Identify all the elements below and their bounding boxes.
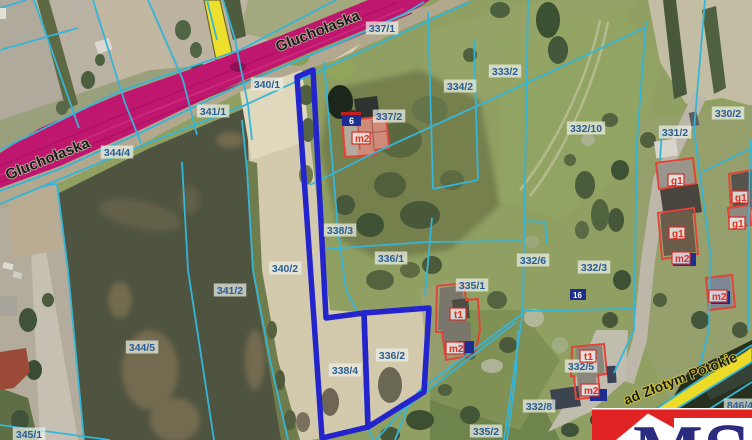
svg-text:341/2: 341/2 [217,285,243,297]
svg-text:m2: m2 [355,134,370,145]
svg-text:344/4: 344/4 [104,147,130,159]
svg-text:t1: t1 [584,352,593,363]
svg-text:g1: g1 [732,219,744,230]
svg-text:334/2: 334/2 [447,81,473,93]
svg-text:333/2: 333/2 [492,66,518,78]
svg-text:m2: m2 [712,292,727,303]
svg-text:g1: g1 [735,193,747,204]
svg-text:336/1: 336/1 [378,253,404,265]
svg-text:g1: g1 [672,229,684,240]
svg-text:341/1: 341/1 [200,106,226,118]
svg-text:16: 16 [573,291,582,300]
svg-text:331/2: 331/2 [662,127,688,139]
svg-text:m2: m2 [584,386,599,397]
svg-text:337/2: 337/2 [376,111,402,123]
svg-text:338/3: 338/3 [327,225,353,237]
svg-text:M: M [633,411,703,440]
svg-text:332/8: 332/8 [526,401,552,413]
svg-text:345/1: 345/1 [16,429,42,440]
svg-text:m2: m2 [449,344,464,355]
svg-text:344/5: 344/5 [129,342,155,354]
svg-text:337/1: 337/1 [369,23,395,35]
svg-text:S: S [703,405,751,440]
svg-text:330/2: 330/2 [715,108,741,120]
svg-text:332/10: 332/10 [570,123,602,135]
svg-text:336/2: 336/2 [379,350,405,362]
svg-text:g1: g1 [671,176,683,187]
svg-text:340/1: 340/1 [254,79,280,91]
svg-text:335/2: 335/2 [473,426,499,438]
svg-text:340/2: 340/2 [272,263,298,275]
svg-text:332/3: 332/3 [581,262,607,274]
svg-text:332/6: 332/6 [520,255,546,267]
svg-text:m2: m2 [675,254,690,265]
svg-text:338/4: 338/4 [332,365,358,377]
svg-text:6: 6 [349,116,354,126]
svg-text:t1: t1 [454,310,463,321]
svg-text:335/1: 335/1 [459,280,485,292]
